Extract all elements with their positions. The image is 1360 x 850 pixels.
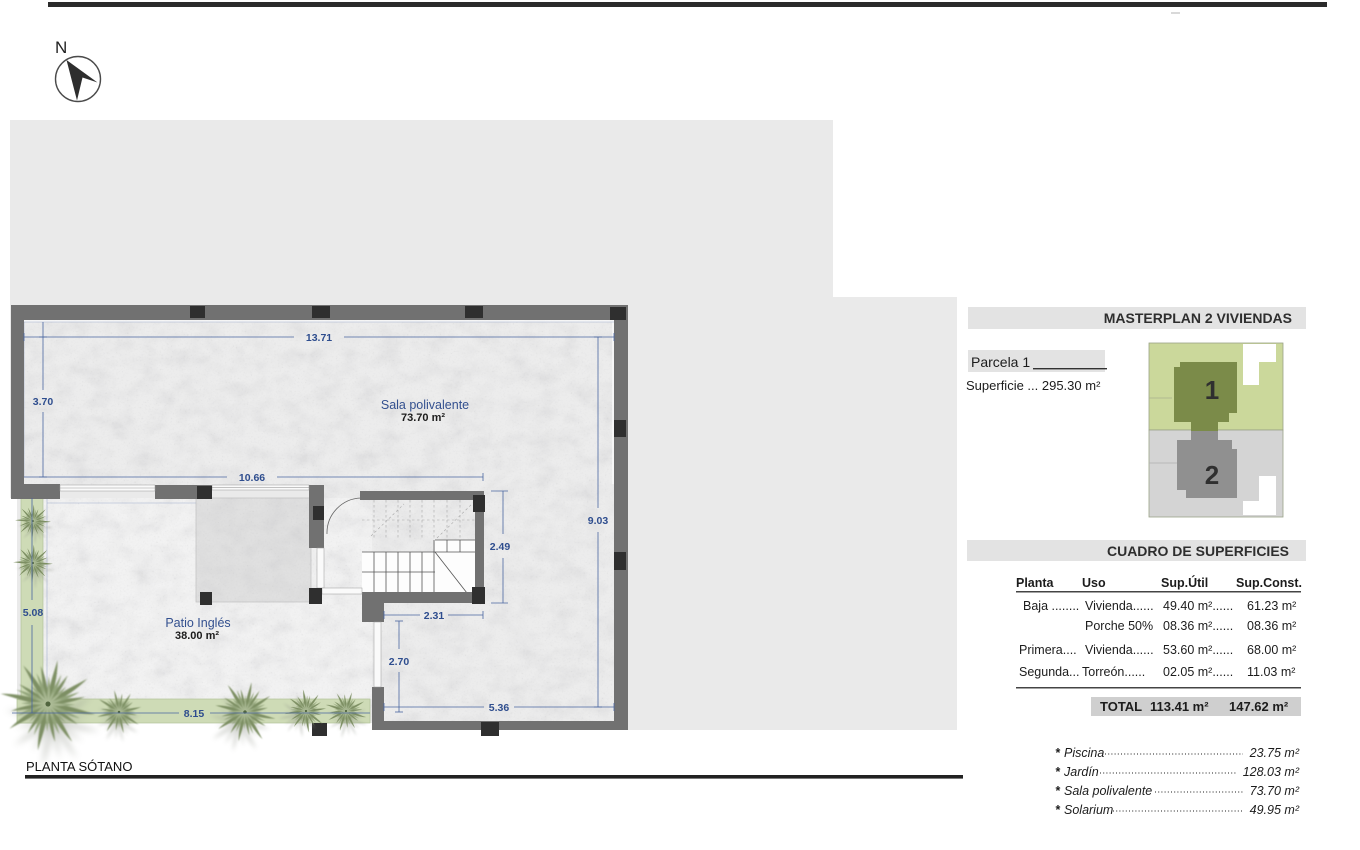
svg-text:10.66: 10.66: [239, 472, 265, 484]
svg-text:Primera....: Primera....: [1019, 643, 1077, 657]
svg-text:Porche 50%: Porche 50%: [1085, 619, 1153, 633]
svg-text:N: N: [55, 38, 67, 57]
svg-text:Uso: Uso: [1082, 576, 1106, 590]
svg-text:CUADRO DE SUPERFICIES: CUADRO DE SUPERFICIES: [1107, 543, 1289, 559]
svg-text:11.03 m²: 11.03 m²: [1247, 665, 1295, 679]
svg-text:Jardín: Jardín: [1063, 765, 1099, 779]
svg-text:TOTAL: TOTAL: [1100, 699, 1142, 714]
svg-text:3.70: 3.70: [33, 396, 54, 408]
svg-text:Planta: Planta: [1016, 576, 1055, 590]
svg-text:MASTERPLAN 2 VIVIENDAS: MASTERPLAN 2 VIVIENDAS: [1104, 310, 1292, 326]
svg-text:49.40 m²......: 49.40 m²......: [1163, 599, 1233, 613]
svg-text:Segunda...: Segunda...: [1019, 665, 1079, 679]
svg-text:Sup.Útil: Sup.Útil: [1161, 575, 1208, 590]
svg-text:5.08: 5.08: [23, 607, 44, 619]
svg-text:Baja ........: Baja ........: [1023, 599, 1079, 613]
svg-text:128.03 m²: 128.03 m²: [1243, 765, 1300, 779]
svg-text:Superficie ... 295.30 m²: Superficie ... 295.30 m²: [966, 378, 1101, 393]
svg-text:08.36 m²......: 08.36 m²......: [1163, 619, 1233, 633]
svg-text:53.60 m²......: 53.60 m²......: [1163, 643, 1233, 657]
svg-text:9.03: 9.03: [588, 515, 609, 527]
svg-text:61.23 m²: 61.23 m²: [1247, 599, 1296, 613]
svg-text:1: 1: [1205, 375, 1219, 405]
svg-text:23.75 m²: 23.75 m²: [1249, 746, 1300, 760]
svg-text:13.71: 13.71: [306, 332, 332, 344]
svg-text:Piscina: Piscina: [1064, 746, 1104, 760]
svg-text:2: 2: [1205, 460, 1219, 490]
svg-text:Sup.Const.: Sup.Const.: [1236, 576, 1302, 590]
svg-text:2.31: 2.31: [424, 610, 445, 622]
svg-text:Solarium: Solarium: [1064, 803, 1113, 817]
svg-text:Patio Inglés: Patio Inglés: [165, 616, 230, 630]
svg-text:2.49: 2.49: [490, 541, 511, 553]
svg-text:Sala polivalente: Sala polivalente: [1064, 784, 1152, 798]
svg-text:Vivienda......: Vivienda......: [1085, 643, 1154, 657]
svg-text:38.00 m²: 38.00 m²: [175, 630, 219, 642]
svg-text:Torreón......: Torreón......: [1082, 665, 1145, 679]
svg-text:68.00 m²: 68.00 m²: [1247, 643, 1296, 657]
svg-text:8.15: 8.15: [184, 708, 205, 720]
svg-text:5.36: 5.36: [489, 702, 510, 714]
svg-text:Vivienda......: Vivienda......: [1085, 599, 1154, 613]
svg-text:113.41 m²: 113.41 m²: [1150, 699, 1209, 714]
svg-text:PLANTA SÓTANO: PLANTA SÓTANO: [26, 759, 132, 774]
svg-text:2.70: 2.70: [389, 656, 410, 668]
svg-text:73.70 m²: 73.70 m²: [401, 412, 445, 424]
svg-text:08.36 m²: 08.36 m²: [1247, 619, 1296, 633]
svg-text:147.62 m²: 147.62 m²: [1229, 699, 1289, 714]
svg-text:49.95 m²: 49.95 m²: [1250, 803, 1300, 817]
svg-text:73.70 m²: 73.70 m²: [1250, 784, 1300, 798]
svg-text:Sala polivalente: Sala polivalente: [381, 398, 469, 412]
svg-text:Parcela 1: Parcela 1: [971, 354, 1030, 370]
svg-text:02.05 m²......: 02.05 m²......: [1163, 665, 1233, 679]
